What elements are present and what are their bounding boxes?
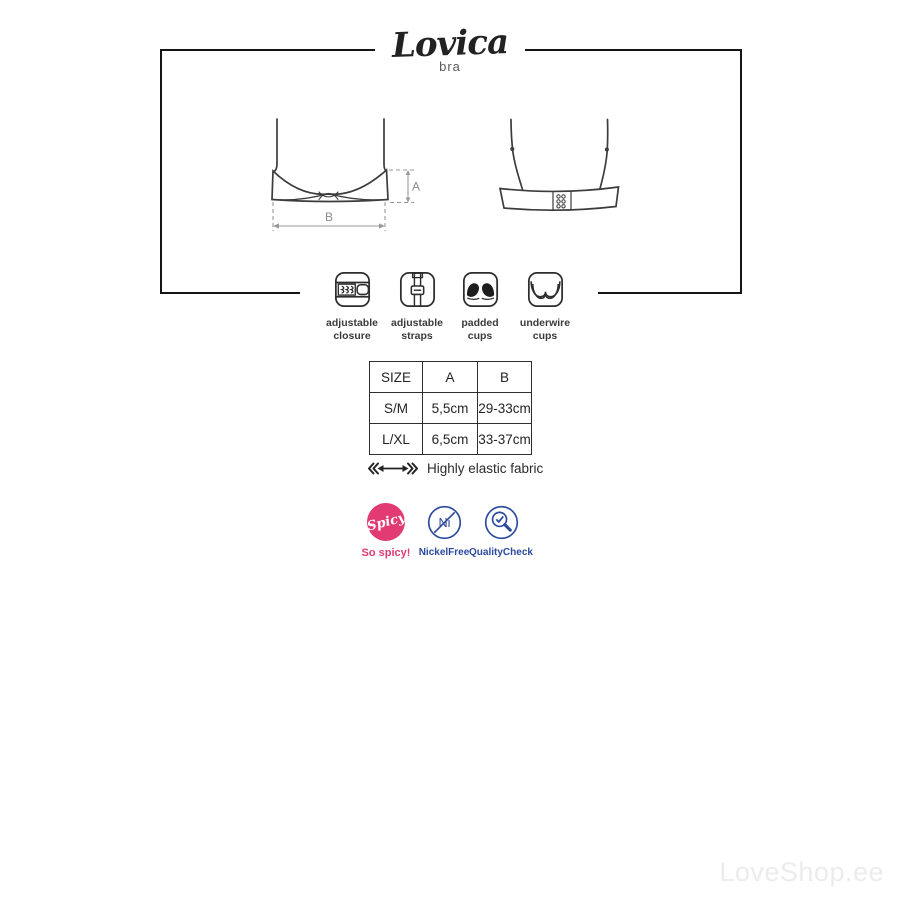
padded-cups-icon bbox=[456, 271, 505, 313]
feature-underwire-cups: underwirecups bbox=[502, 271, 588, 342]
table-row: S/M 5,5cm 29-33cm bbox=[370, 393, 532, 424]
spicy-circle-text: Spicy bbox=[365, 510, 406, 534]
technical-drawing: A B bbox=[160, 49, 740, 292]
col-header-a: A bbox=[423, 362, 478, 393]
dimension-b: B bbox=[273, 202, 385, 231]
underwire-cups-icon bbox=[521, 271, 570, 313]
quality-check-badge: QualityCheck bbox=[467, 504, 535, 558]
bra-back-view bbox=[500, 120, 619, 211]
size-value: L/XL bbox=[370, 424, 423, 455]
elastic-fabric-label: Highly elastic fabric bbox=[427, 461, 543, 476]
nickel-free-label: NickelFree bbox=[419, 547, 470, 558]
a-value: 5,5cm bbox=[423, 393, 478, 424]
adjustable-closure-icon bbox=[328, 271, 377, 313]
size-table: SIZE A B S/M 5,5cm 29-33cm L/XL 6,5cm 33… bbox=[369, 361, 532, 455]
a-value: 6,5cm bbox=[423, 424, 478, 455]
quality-check-icon bbox=[483, 504, 520, 541]
adjustable-straps-icon bbox=[393, 271, 442, 313]
bra-front-view bbox=[272, 119, 388, 202]
product-sheet: Lovica bra bbox=[0, 0, 900, 900]
size-value: S/M bbox=[370, 393, 423, 424]
spicy-icon: Spicy bbox=[367, 503, 405, 541]
feature-label: adjustablestraps bbox=[391, 317, 443, 342]
col-header-b: B bbox=[478, 362, 532, 393]
feature-label: paddedcups bbox=[461, 317, 498, 342]
table-row: L/XL 6,5cm 33-37cm bbox=[370, 424, 532, 455]
dimension-b-label: B bbox=[325, 210, 333, 224]
spicy-label: So spicy! bbox=[362, 547, 411, 559]
spicy-badge: Spicy So spicy! bbox=[355, 503, 417, 559]
stretch-arrow-icon bbox=[367, 461, 419, 476]
nickel-free-icon: Ni bbox=[426, 504, 463, 541]
feature-label: adjustableclosure bbox=[326, 317, 378, 342]
watermark: LoveShop.ee bbox=[719, 857, 884, 888]
dimension-a-label: A bbox=[412, 180, 420, 194]
feature-label: underwirecups bbox=[520, 317, 570, 342]
size-table-header-row: SIZE A B bbox=[370, 362, 532, 393]
b-value: 29-33cm bbox=[478, 393, 532, 424]
col-header-size: SIZE bbox=[370, 362, 423, 393]
elastic-fabric-note: Highly elastic fabric bbox=[367, 461, 543, 476]
quality-check-label: QualityCheck bbox=[469, 547, 533, 558]
b-value: 33-37cm bbox=[478, 424, 532, 455]
dimension-a: A bbox=[389, 170, 420, 203]
